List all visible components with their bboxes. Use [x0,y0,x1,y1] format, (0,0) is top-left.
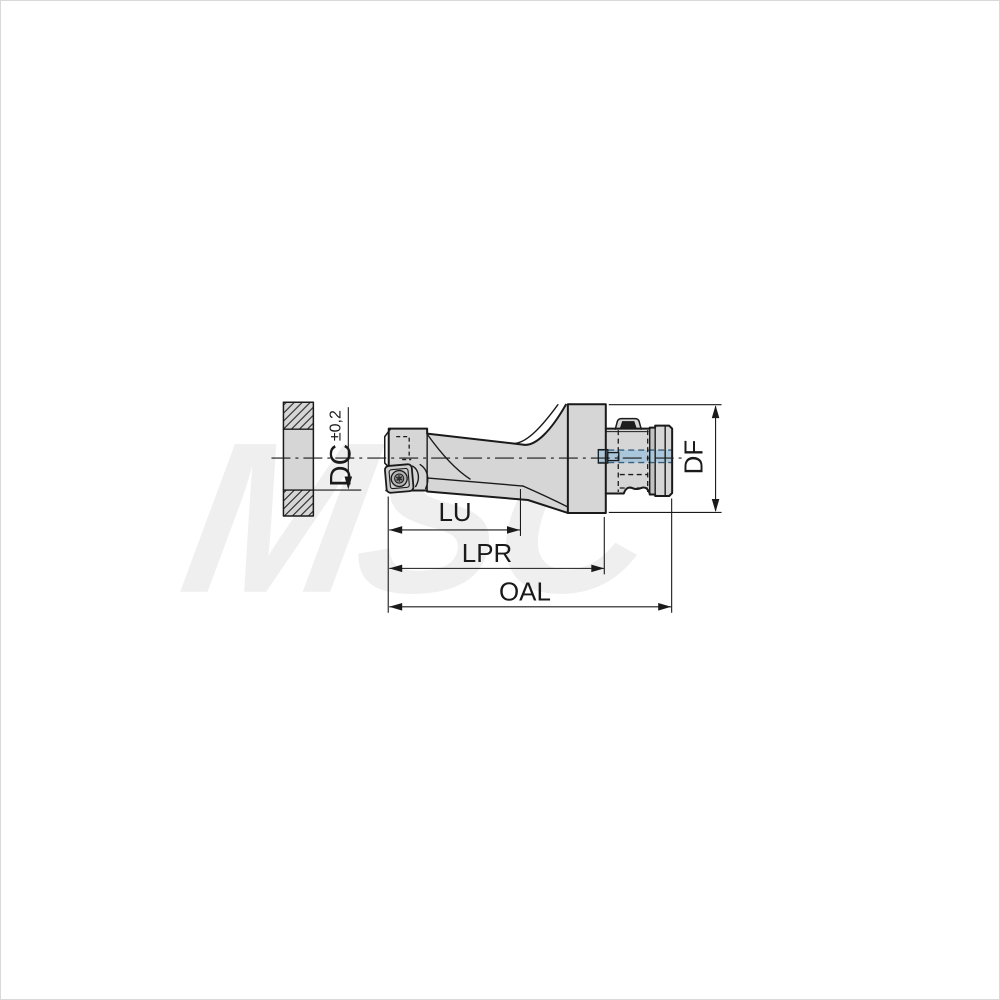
hatch-bottom [283,490,313,516]
workpiece-section [283,402,313,516]
lu-label: LU [439,499,472,527]
df-label: DF [681,440,709,475]
hatch-top [283,402,313,429]
dc-label: DC [324,444,357,487]
oal-arrow-right [658,603,671,611]
df-arrow-bottom [712,499,720,512]
df-arrow-top [712,405,720,418]
lpr-label: LPR [462,540,512,568]
drawing-canvas: MSC DC ±0,2 [0,0,1000,1000]
technical-drawing: MSC DC ±0,2 [1,1,999,999]
drive-button-key [620,422,636,429]
oal-label: OAL [499,578,551,606]
drill-insert [385,464,414,493]
coolant-channel [598,450,671,463]
dc-tolerance-label: ±0,2 [327,410,344,441]
